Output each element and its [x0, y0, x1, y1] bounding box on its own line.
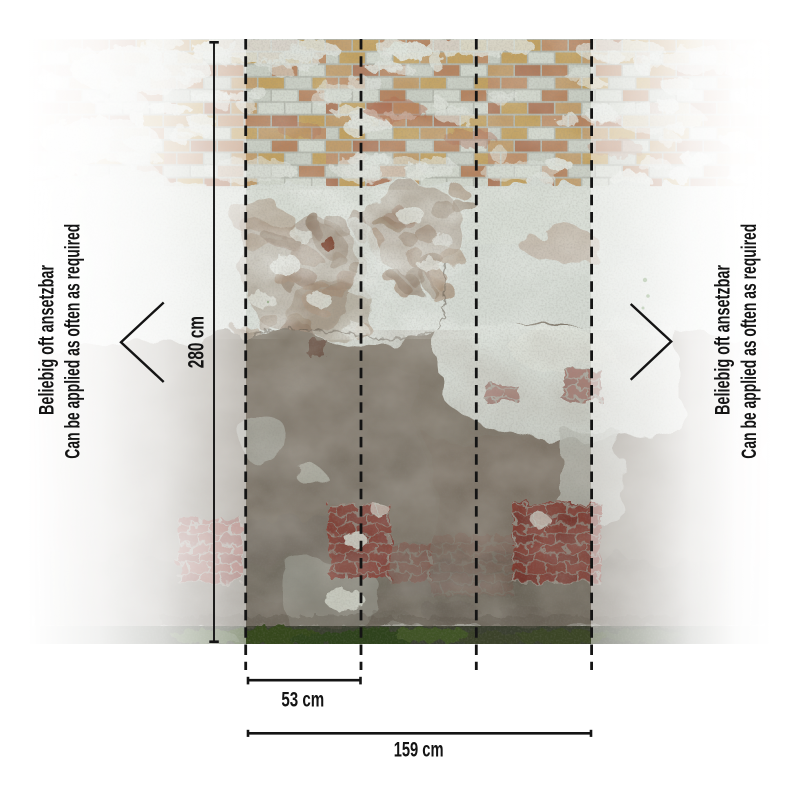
svg-text:Can be applied as often as req: Can be applied as often as required	[61, 224, 85, 459]
svg-text:Beliebig oft ansetzbar: Beliebig oft ansetzbar	[35, 265, 58, 415]
svg-text:Can be applied as often as req: Can be applied as often as required	[737, 224, 761, 459]
svg-text:280 cm: 280 cm	[185, 316, 209, 368]
svg-text:159 cm: 159 cm	[394, 738, 444, 761]
svg-text:53 cm: 53 cm	[281, 687, 324, 711]
svg-text:Beliebig oft ansetzbar: Beliebig oft ansetzbar	[711, 265, 734, 415]
